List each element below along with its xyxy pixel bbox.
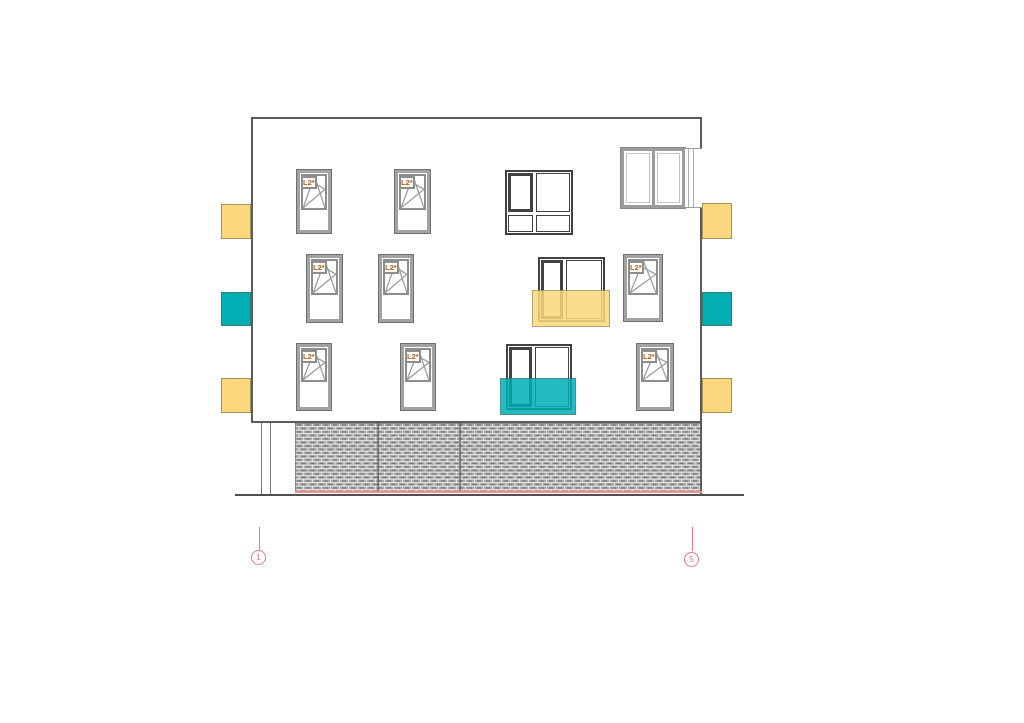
- dark-window: [505, 170, 573, 235]
- elevation-canvas: L2*L2*L2*L2*L2*L2*L2*L2*15: [0, 0, 1024, 723]
- corner-window-divider: [652, 151, 655, 205]
- dark-window-pane: [536, 173, 570, 212]
- accent-panel: [702, 203, 732, 239]
- accent-panel: [221, 204, 251, 239]
- window-label-panel: L2*: [641, 350, 657, 363]
- axis-line: [259, 527, 260, 550]
- downpipe-line: [261, 423, 262, 494]
- window-label-panel: L2*: [405, 350, 421, 363]
- balcony-overlay: [500, 378, 576, 415]
- tilt-turn-window: L2*: [637, 344, 673, 410]
- base-hatch: [295, 423, 702, 493]
- corner-window-return-line: [688, 149, 689, 207]
- ground-line: [235, 494, 744, 496]
- dark-window-sash: [508, 173, 533, 212]
- tilt-turn-window: L2*: [307, 255, 342, 322]
- window-label-panel: L2*: [399, 176, 415, 189]
- dark-window-pane: [508, 215, 533, 232]
- axis-bubble: 1: [251, 550, 266, 565]
- facade-right-edge: [700, 423, 702, 494]
- corner-window-return-line: [693, 149, 694, 207]
- tilt-turn-window: L2*: [624, 255, 662, 321]
- accent-panel: [221, 378, 251, 413]
- downpipe-line: [270, 423, 271, 494]
- accent-panel: [702, 378, 732, 413]
- tilt-turn-window: L2*: [401, 344, 435, 410]
- corner-window-pane: [626, 153, 650, 203]
- window-label-panel: L2*: [301, 176, 317, 189]
- tilt-turn-window: L2*: [379, 255, 413, 322]
- axis-line: [692, 527, 693, 551]
- tilt-turn-window: L2*: [297, 344, 331, 410]
- window-label-panel: L2*: [311, 261, 327, 274]
- corner-window-return: [685, 148, 702, 208]
- dark-window-pane: [536, 215, 570, 232]
- tilt-turn-window: L2*: [395, 170, 430, 233]
- corner-window: [621, 148, 685, 208]
- accent-panel: [702, 292, 732, 326]
- balcony-overlay: [532, 290, 610, 327]
- corner-window-pane: [657, 153, 680, 203]
- tilt-turn-window: L2*: [297, 170, 331, 233]
- window-label-panel: L2*: [301, 350, 317, 363]
- window-label-panel: L2*: [383, 261, 399, 274]
- accent-panel: [221, 292, 251, 326]
- window-label-panel: L2*: [628, 261, 644, 274]
- axis-bubble: 5: [684, 552, 699, 567]
